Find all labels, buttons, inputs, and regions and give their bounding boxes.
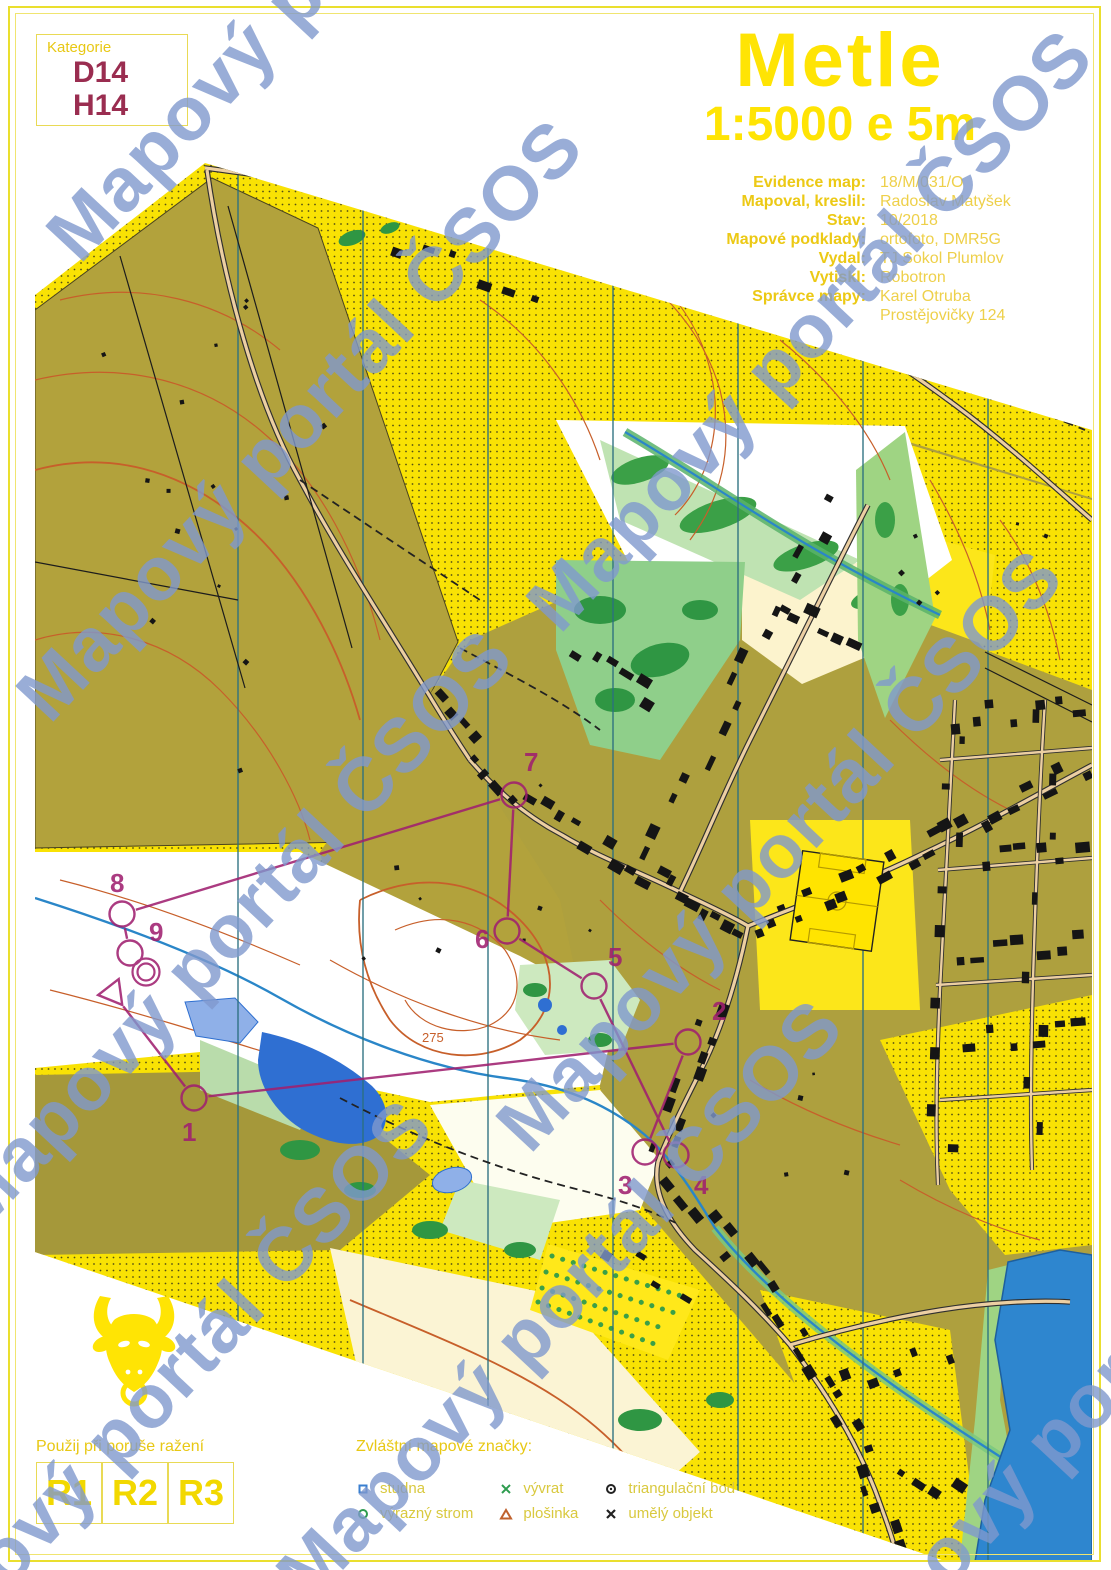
legend-label: triangulační bod [628,1480,735,1497]
credit-label: Evidence map: [600,173,880,192]
legend-item-studna: studna [356,1476,473,1501]
credit-value: 18/M/031/O [880,173,1030,192]
punch-block: Použij při poruše ražení R1 R2 R3 [36,1438,234,1524]
credit-label: Vytiskl: [600,268,880,287]
control-number-8: 8 [110,868,124,898]
control-number-2: 2 [712,996,726,1026]
legend-label: plošinka [523,1505,578,1522]
rootstock-icon [499,1482,513,1496]
map-sheet: 275 [0,0,1111,1570]
credit-label [600,306,880,325]
control-number-6: 6 [475,924,489,954]
credit-row: Mapové podklady: ortofoto, DMR5G [600,230,1030,249]
legend-item-vyrazny-strom: výrazný strom [356,1501,473,1526]
legend-item-umely-objekt: umělý objekt [604,1501,735,1526]
credit-row: Vytiskl: Robotron [600,268,1030,287]
category-h14: H14 [47,89,177,122]
credit-row: Prostějovičky 124 [600,306,1030,325]
legend-label: vývrat [523,1480,563,1497]
credit-row: Správce mapy: Karel Otruba [600,287,1030,306]
control-number-9: 9 [149,917,163,947]
well-icon [356,1482,370,1496]
punch-label: Použij při poruše ražení [36,1438,234,1456]
credit-row: Stav: 10/2018 [600,211,1030,230]
legend-item-vyvrat: vývrat [499,1476,578,1501]
man-made-object-icon [604,1507,618,1521]
control-number-5: 5 [608,942,622,972]
punch-box-r2: R2 [102,1462,168,1524]
credit-label: Správce mapy: [600,287,880,306]
credit-label: Vydal: [600,249,880,268]
credit-value: Prostějovičky 124 [880,306,1030,325]
legend-label: výrazný strom [380,1505,473,1522]
control-number-7: 7 [524,747,538,777]
control-number-3: 3 [618,1170,632,1200]
credit-row: Vydal: TJ Sokol Plumlov [600,249,1030,268]
credit-label: Mapoval, kreslil: [600,192,880,211]
credit-value: Robotron [880,268,1030,287]
title-block: Metle 1:5000 e 5m [600,22,1080,150]
credit-row: Evidence map: 18/M/031/O [600,173,1030,192]
category-box: Kategorie D14 H14 [36,34,188,126]
credit-row: Mapoval, kreslil: Radoslav Matyšek [600,192,1030,211]
control-number-1: 1 [182,1117,196,1147]
credit-value: Karel Otruba [880,287,1030,306]
map-title: Metle [600,22,1080,100]
triangulation-point-icon [604,1482,618,1496]
control-number-4: 4 [694,1170,709,1200]
prominent-tree-icon [356,1507,370,1521]
punch-boxes: R1 R2 R3 [36,1462,234,1524]
legend-label: studna [380,1480,425,1497]
credit-value: 10/2018 [880,211,1030,230]
credit-value: TJ Sokol Plumlov [880,249,1030,268]
credit-label: Stav: [600,211,880,230]
platform-icon [499,1507,513,1521]
category-box-label: Kategorie [47,39,177,56]
credits-block: Evidence map: 18/M/031/O Mapoval, kresli… [600,173,1030,325]
credit-value: Radoslav Matyšek [880,192,1030,211]
punch-box-r3: R3 [168,1462,234,1524]
special-symbols-legend: Zvláštní mapové značky: studna výrazný s… [356,1438,856,1526]
punch-box-r1: R1 [36,1462,102,1524]
credit-value: ortofoto, DMR5G [880,230,1030,249]
legend-title: Zvláštní mapové značky: [356,1438,856,1456]
legend-item-triangulacni-bod: triangulační bod [604,1476,735,1501]
contour-elevation-label: 275 [422,1030,444,1045]
map-scale: 1:5000 e 5m [600,100,1080,150]
club-bull-logo [84,1292,184,1410]
legend-label: umělý objekt [628,1505,712,1522]
credit-label: Mapové podklady: [600,230,880,249]
legend-item-plosinka: plošinka [499,1501,578,1526]
category-d14: D14 [47,56,177,89]
